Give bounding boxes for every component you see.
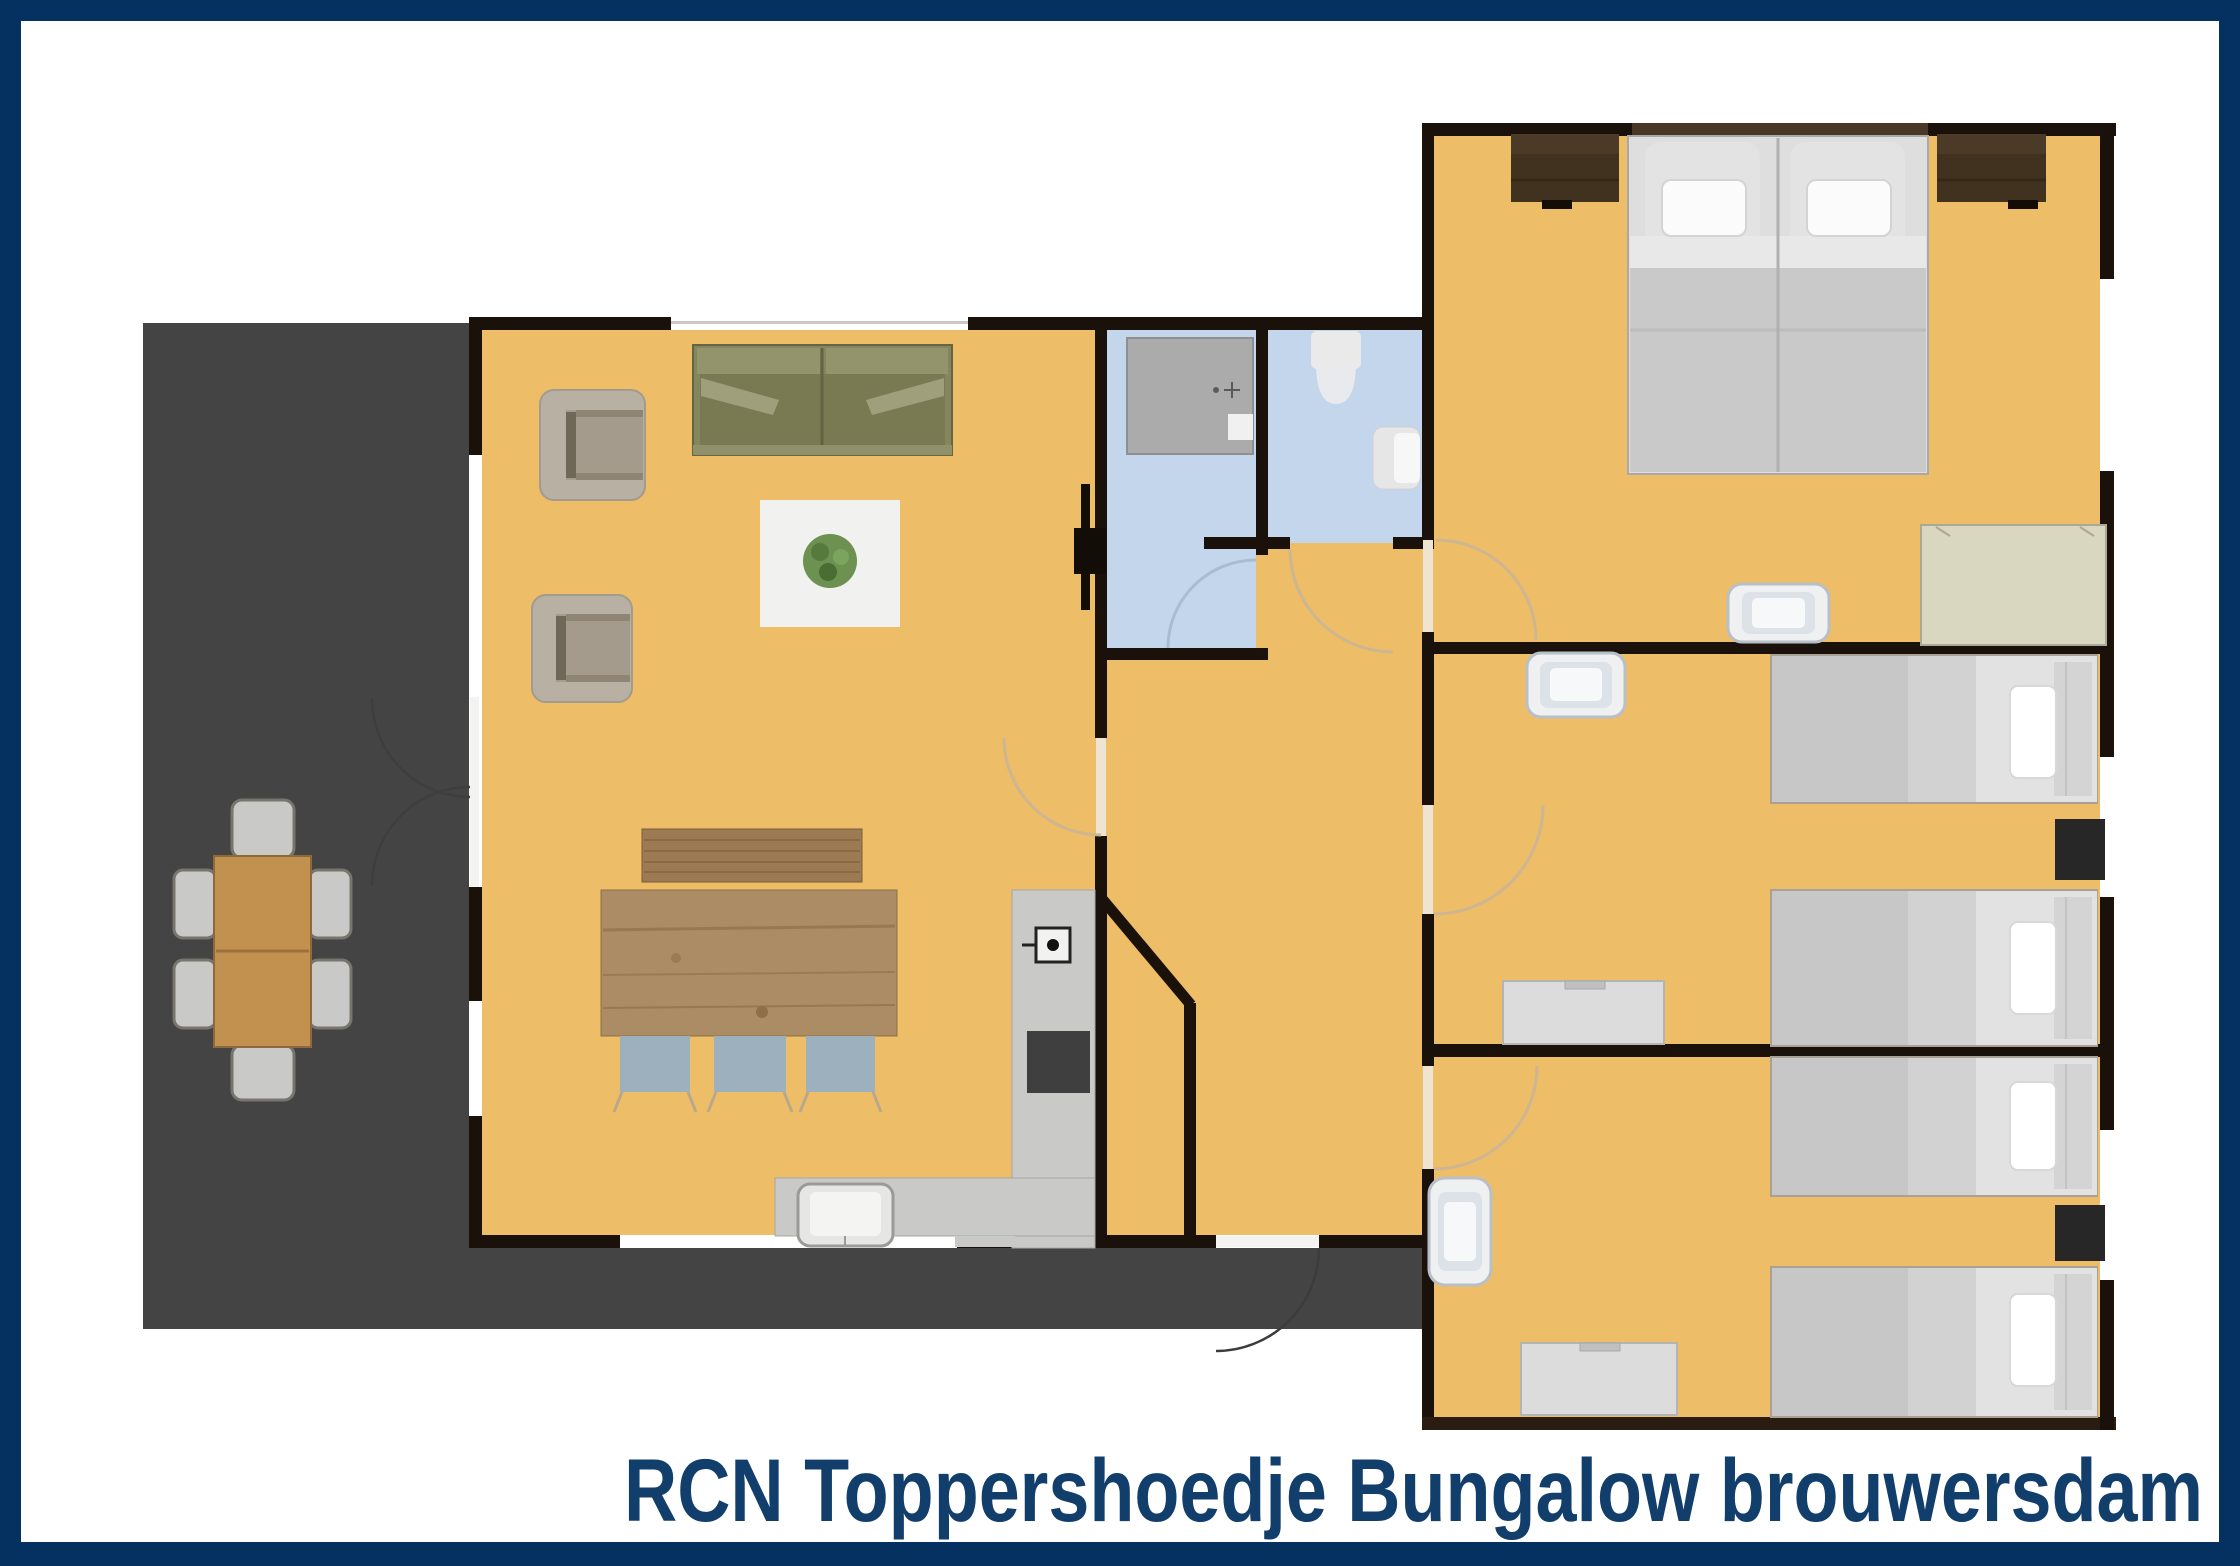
svg-text:RCN Toppershoedje Bungalow bro: RCN Toppershoedje Bungalow brouwersdam [624, 1440, 2203, 1540]
